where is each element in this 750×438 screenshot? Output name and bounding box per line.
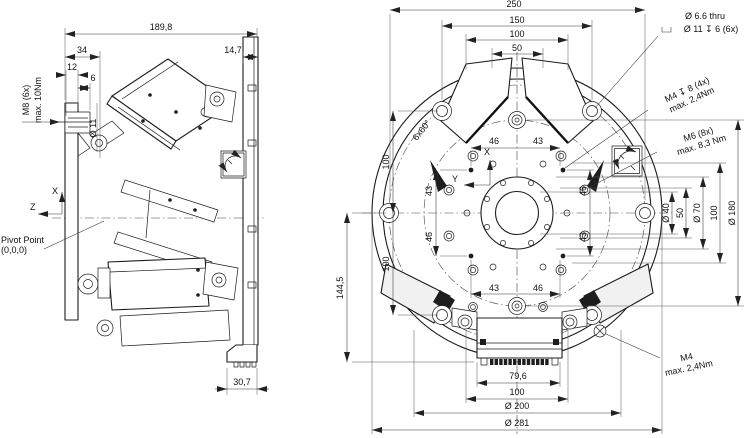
dim-46-left: 46: [424, 232, 434, 242]
dim-250: 250: [506, 0, 521, 9]
thread-note-m8-line2: max. 10Nm: [33, 77, 43, 123]
dim-14-7: 14,7: [224, 45, 242, 55]
dim-46-right: 46: [578, 186, 588, 196]
bottom-foot: [227, 345, 257, 367]
dim-43-left: 43: [424, 186, 434, 196]
dim-100-left-upper: 100: [381, 154, 391, 169]
cad-drawing-sheet: X Z Pivot Point (0,0,0) 189,8 34 14,7 1: [0, 0, 750, 438]
dim-43-top: 43: [533, 136, 543, 146]
lower-right-clamp: [203, 262, 238, 300]
rotation-direction-icon: [221, 151, 246, 178]
dim-30-7: 30,7: [233, 377, 251, 387]
technical-drawing: X Z Pivot Point (0,0,0) 189,8 34 14,7 1: [0, 0, 750, 438]
counterbore-icon: [662, 27, 671, 32]
grounding-screw: [594, 325, 606, 337]
dim-34: 34: [77, 45, 87, 55]
axis-z-label: Z: [30, 202, 36, 212]
upper-actuator-box: [90, 59, 236, 151]
dim-150: 150: [509, 15, 524, 25]
dim-dia180: Ø 180: [727, 201, 737, 226]
dim-43-right: 43: [578, 232, 588, 242]
cbore-note-line2: Ø 11 ↧ 6 (6x): [684, 24, 738, 34]
dim-100-bottom: 100: [509, 387, 524, 397]
dim-189-8: 189,8: [150, 22, 173, 32]
front-flange-plate: [243, 37, 258, 345]
dim-6: 6: [90, 73, 95, 83]
pivot-label-line1: Pivot Point: [1, 235, 45, 245]
dim-50-right: 50: [675, 208, 685, 218]
dim-dia70: Ø 70: [692, 203, 702, 223]
axis-x-label-front: X: [484, 147, 490, 157]
axis-x-label: X: [52, 186, 58, 196]
m4-ground-leader: [606, 334, 660, 358]
lower-clamp-ring: [78, 274, 98, 294]
front-view: X Y 6x60° 250 150 100 50: [335, 0, 744, 434]
dim-50-top: 50: [512, 43, 522, 53]
thread-note-m8-line1: M8 (6x): [21, 85, 31, 116]
dim-dia11: Ø 11: [88, 119, 98, 138]
axis-y-label-front: Y: [452, 174, 458, 184]
rotation-direction-icon-front: [612, 146, 642, 176]
m8-boss-section: [65, 112, 90, 133]
front-top-dimensions: 250 150 100 50: [390, 0, 645, 200]
side-view: X Z Pivot Point (0,0,0) 189,8 34 14,7 1: [1, 22, 269, 395]
upper-right-clamp: [204, 85, 236, 122]
bottom-mechanism: [97, 310, 230, 346]
dim-144-5: 144,5: [335, 277, 345, 300]
dim-46-bottom: 46: [533, 283, 543, 293]
cbore-note-line1: Ø 6.6 thru: [685, 11, 725, 21]
dim-100-left-lower: 100: [381, 256, 391, 271]
dim-12: 12: [67, 62, 77, 72]
dim-43-bottom: 43: [489, 283, 499, 293]
center-bore: [481, 177, 553, 249]
pivot-label-line2: (0,0,0): [1, 245, 27, 255]
dim-100-right: 100: [709, 205, 719, 220]
dim-79-6: 79,6: [509, 371, 527, 381]
connector-pins: [481, 358, 558, 365]
pivot-point-callout: Pivot Point (0,0,0): [1, 221, 104, 255]
lower-actuator-box: [78, 258, 238, 310]
m6-callout: M6 (8x) max. 8,3 Nm: [672, 122, 727, 157]
axis-marker-xz: X Z: [30, 186, 62, 214]
dim-100-top: 100: [509, 29, 524, 39]
dim-46-top: 46: [489, 136, 499, 146]
m4-tapped-callout: M4 ↧ 8 (4x) max. 2,4Nm: [663, 75, 716, 115]
dim-dia200: Ø 200: [505, 401, 530, 411]
m4-ground-callout: M4 max. 2,4Nm: [662, 347, 714, 378]
angle-note: 6x60°: [411, 118, 433, 143]
dim-dia281: Ø 281: [505, 418, 530, 428]
dim-dia40: Ø 40: [661, 203, 671, 223]
